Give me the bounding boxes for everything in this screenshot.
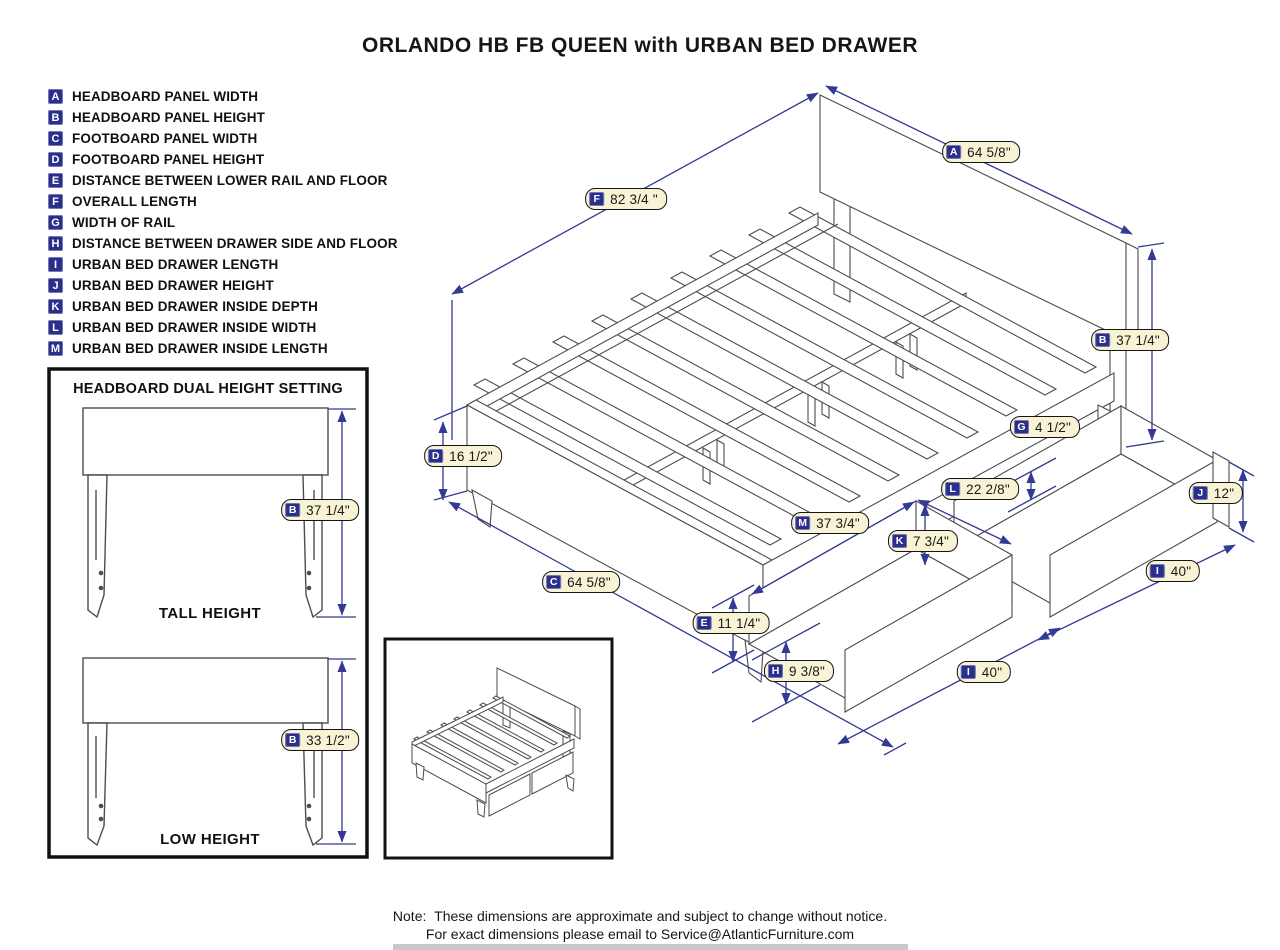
diagram-canvas: ORLANDO HB FB QUEEN with URBAN BED DRAWE…	[0, 0, 1280, 950]
bed-technical-drawing	[0, 0, 1280, 950]
footboard-panel	[467, 400, 772, 650]
low-headboard-drawing	[83, 658, 328, 845]
main-bed-drawing	[467, 95, 1229, 712]
assembled-bed-inset	[385, 639, 612, 858]
left-urban-drawer	[749, 501, 1012, 712]
note-line1: Note: These dimensions are approximate a…	[0, 907, 1280, 925]
note-label: Note:	[393, 908, 426, 924]
footer-divider-bar	[393, 944, 908, 950]
dim-F	[452, 93, 818, 294]
note-line2: For exact dimensions please email to Ser…	[0, 925, 1280, 943]
note: Note: These dimensions are approximate a…	[0, 907, 1280, 943]
low-height-label: LOW HEIGHT	[130, 831, 290, 848]
tall-height-label: TALL HEIGHT	[130, 605, 290, 622]
tall-headboard-drawing	[83, 408, 328, 617]
headboard-box-title: HEADBOARD DUAL HEIGHT SETTING	[60, 381, 356, 397]
